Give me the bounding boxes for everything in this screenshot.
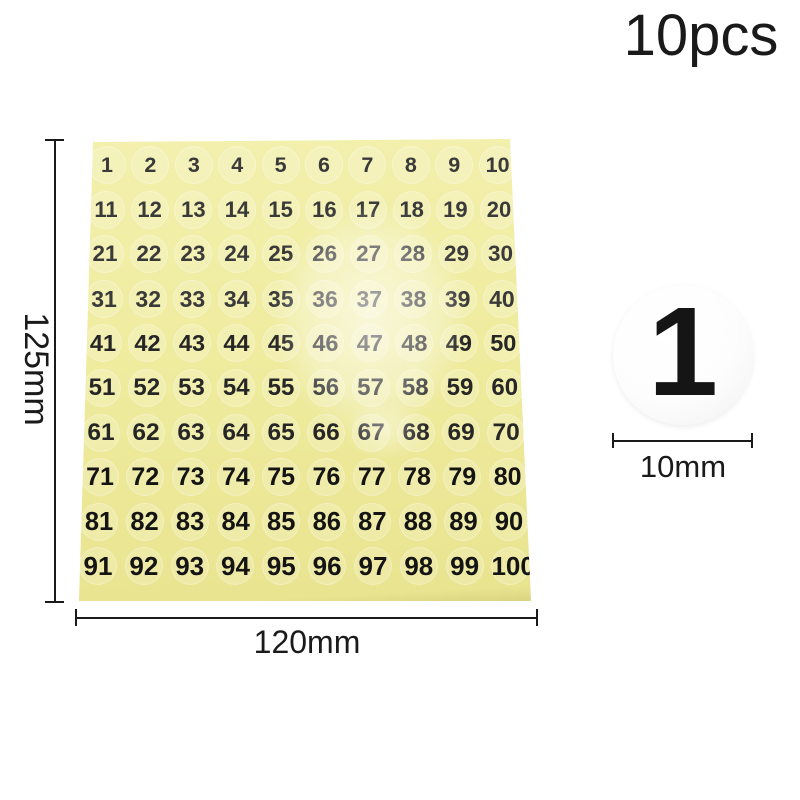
sticker-number: 47 (351, 324, 389, 362)
sticker-number: 78 (398, 458, 436, 496)
sample-sticker-number: 1 (648, 289, 718, 415)
sample-sticker: 1 (613, 285, 753, 425)
sticker-number: 62 (127, 414, 165, 452)
sticker-number: 7 (348, 146, 386, 184)
sticker-number: 66 (307, 414, 345, 452)
sticker-number: 77 (353, 458, 391, 496)
sticker-number: 42 (128, 324, 166, 362)
diameter-dimension-tick-right (751, 433, 753, 448)
sticker-number: 48 (395, 324, 433, 362)
sticker-number: 61 (82, 414, 120, 452)
sticker-number: 37 (350, 280, 388, 318)
quantity-label: 10pcs (612, 2, 790, 69)
sticker-number: 41 (84, 324, 122, 362)
sticker-number: 98 (400, 547, 438, 585)
sticker-number: 79 (443, 458, 481, 496)
sticker-number: 24 (218, 235, 256, 273)
sticker-number: 25 (262, 235, 300, 273)
sticker-number: 81 (80, 503, 118, 541)
sticker-number: 96 (308, 547, 346, 585)
sticker-number: 3 (175, 146, 213, 184)
sticker-number: 35 (262, 280, 300, 318)
sticker-number: 97 (354, 547, 392, 585)
sticker-number: 36 (306, 280, 344, 318)
height-dimension-label: 125mm (18, 309, 54, 429)
sticker-number: 28 (394, 235, 432, 273)
sticker-number: 22 (130, 235, 168, 273)
width-dimension-line (75, 617, 538, 619)
sticker-number: 57 (352, 369, 390, 407)
sticker-number: 83 (171, 503, 209, 541)
sticker-number: 43 (173, 324, 211, 362)
sticker-number: 53 (173, 369, 211, 407)
sticker-number: 74 (217, 458, 255, 496)
sticker-number: 76 (307, 458, 345, 496)
sticker-number: 18 (393, 191, 431, 229)
sticker-number: 93 (171, 547, 209, 585)
sticker-number: 20 (480, 191, 518, 229)
diameter-dimension-tick-left (612, 433, 614, 448)
sticker-number: 92 (125, 547, 163, 585)
sticker-number: 40 (483, 280, 521, 318)
sticker-number: 38 (394, 280, 432, 318)
diameter-dimension-label: 10mm (608, 449, 758, 485)
sticker-number: 63 (172, 414, 210, 452)
sticker-number: 26 (306, 235, 344, 273)
sticker-number: 4 (218, 146, 256, 184)
sticker-number: 59 (441, 369, 479, 407)
sticker-number: 99 (446, 547, 484, 585)
sticker-number: 64 (217, 414, 255, 452)
sticker-number: 44 (217, 324, 255, 362)
sticker-number: 58 (396, 369, 434, 407)
sticker-number: 15 (262, 191, 300, 229)
sticker-number: 30 (481, 235, 519, 273)
width-dimension-tick-left (75, 609, 77, 626)
sticker-number: 72 (126, 458, 164, 496)
sticker-number: 2 (131, 146, 169, 184)
sticker-number: 29 (438, 235, 476, 273)
sticker-number: 86 (308, 503, 346, 541)
sticker-number: 100 (491, 547, 529, 585)
diameter-dimension-line (613, 440, 753, 442)
sticker-number: 19 (436, 191, 474, 229)
sticker-sheet: 1234567891011121314151617181920212223242… (75, 135, 537, 605)
height-dimension-tick-bottom (45, 601, 64, 603)
sticker-number: 94 (216, 547, 254, 585)
sticker-number: 23 (174, 235, 212, 273)
sticker-number: 95 (262, 547, 300, 585)
sticker-number: 69 (442, 414, 480, 452)
width-dimension-tick-right (536, 609, 538, 626)
sticker-number: 34 (218, 280, 256, 318)
product-image: 10pcs 1234567891011121314151617181920212… (0, 0, 800, 800)
sticker-number: 8 (392, 146, 430, 184)
sticker-number: 16 (305, 191, 343, 229)
sticker-number: 39 (439, 280, 477, 318)
sticker-number: 1 (88, 146, 126, 184)
width-dimension-label: 120mm (212, 624, 402, 661)
sticker-number: 51 (83, 369, 121, 407)
sticker-number: 75 (262, 458, 300, 496)
sticker-number: 70 (487, 414, 525, 452)
sticker-number: 56 (307, 369, 345, 407)
sticker-number: 90 (490, 503, 528, 541)
sticker-number: 87 (353, 503, 391, 541)
sticker-number: 49 (440, 324, 478, 362)
sticker-number: 54 (217, 369, 255, 407)
sticker-number: 10 (479, 146, 517, 184)
sticker-number: 27 (350, 235, 388, 273)
sticker-number: 73 (172, 458, 210, 496)
sticker-number: 82 (126, 503, 164, 541)
sticker-number: 80 (489, 458, 527, 496)
sticker-number: 91 (79, 547, 117, 585)
sticker-number: 32 (129, 280, 167, 318)
sticker-number: 50 (484, 324, 522, 362)
sticker-number: 12 (131, 191, 169, 229)
sticker-number: 17 (349, 191, 387, 229)
sticker-number: 14 (218, 191, 256, 229)
sticker-number: 45 (262, 324, 300, 362)
sticker-number: 13 (174, 191, 212, 229)
sticker-number: 6 (305, 146, 343, 184)
sticker-number: 60 (486, 369, 524, 407)
sticker-number: 55 (262, 369, 300, 407)
sticker-number: 67 (352, 414, 390, 452)
sticker-number: 31 (85, 280, 123, 318)
sticker-number: 85 (262, 503, 300, 541)
sticker-number: 88 (399, 503, 437, 541)
sticker-number: 5 (262, 146, 300, 184)
sticker-number: 84 (217, 503, 255, 541)
height-dimension-tick-top (45, 139, 64, 141)
sticker-number: 89 (444, 503, 482, 541)
sticker-number: 21 (86, 235, 124, 273)
sticker-number: 11 (87, 191, 125, 229)
sticker-number: 68 (397, 414, 435, 452)
sticker-number: 33 (173, 280, 211, 318)
sticker-number: 65 (262, 414, 300, 452)
sticker-number: 46 (306, 324, 344, 362)
sticker-number: 52 (128, 369, 166, 407)
sticker-number: 71 (81, 458, 119, 496)
sticker-number: 9 (435, 146, 473, 184)
